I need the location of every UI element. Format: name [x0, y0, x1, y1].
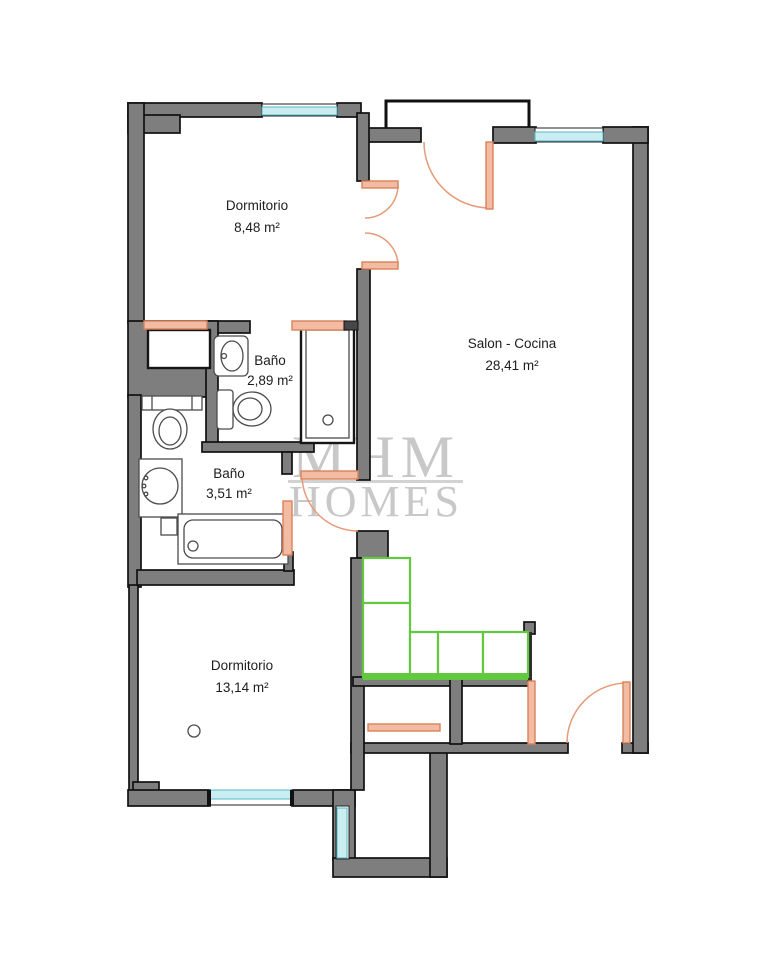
- wall-top-right-2: [603, 127, 648, 143]
- room-name-bathroom-1: Baño: [254, 353, 286, 368]
- toilet1-cistern: [217, 390, 233, 429]
- window-patio-glass: [337, 808, 347, 858]
- toilet2-cistern: [142, 396, 202, 410]
- window-bedroom2-tick-right: [290, 790, 294, 806]
- bathroom2-small-unit: [161, 518, 177, 535]
- bathtub-inner: [184, 520, 282, 558]
- counter-cell-1: [363, 558, 410, 603]
- washbasin-icon: [142, 468, 178, 504]
- bathtub-drain: [188, 541, 198, 551]
- room-area-bathroom-2: 3,51 m²: [206, 486, 252, 501]
- bathroom-2-label: Baño 3,51 m²: [206, 466, 252, 501]
- storage-b-door-leaf: [528, 681, 535, 744]
- bedroom1-door-arc-bottom: [365, 233, 398, 266]
- floor-plan-drawing: MHM HOMES: [0, 0, 766, 960]
- wall-left-upper: [128, 103, 144, 323]
- counter-cell-2: [363, 603, 410, 677]
- room-name-salon-kitchen: Salon - Cocina: [468, 336, 557, 351]
- bathroom1-sliding-door-cap: [344, 321, 358, 330]
- washbasin-tap-dot1: [144, 476, 148, 480]
- entry-door-arc: [424, 142, 490, 208]
- toilet1-bowl-inner: [238, 398, 262, 420]
- terrace-door-leaf: [623, 682, 630, 743]
- floor-plan: MHM HOMES: [0, 0, 766, 960]
- window-bedroom2-tick-left: [207, 790, 211, 806]
- room-name-bathroom-2: Baño: [213, 466, 245, 481]
- bedroom1-door-arc-top: [365, 185, 398, 218]
- room-name-bedroom-1: Dormitorio: [226, 198, 288, 213]
- wardrobe: [148, 330, 210, 368]
- window-bedroom2-glass: [210, 790, 292, 799]
- wardrobe-sliding-door: [144, 321, 207, 329]
- corridor-door-leaf: [301, 471, 358, 479]
- washbasin-tap-dot3: [144, 492, 148, 496]
- kitchen-counter: [363, 558, 528, 680]
- room-area-bathroom-1: 2,89 m²: [247, 373, 293, 388]
- bathroom1-sliding-door: [292, 321, 346, 330]
- washbasin-tap-dot2: [142, 484, 146, 488]
- wall-bathroom1-bottom: [202, 442, 314, 452]
- bathroom-1-label: Baño 2,89 m²: [247, 353, 293, 388]
- bedroom-1-label: Dormitorio 8,48 m²: [226, 198, 288, 235]
- wall-kitchen-pillar: [357, 531, 388, 558]
- wall-top-right-1: [493, 127, 536, 143]
- room-area-bedroom-1: 8,48 m²: [234, 220, 280, 235]
- bedroom1-door-leaf-top: [362, 181, 398, 188]
- bedroom1-door-leaf-bottom: [362, 262, 398, 269]
- window-bedroom1-glass: [262, 107, 337, 115]
- wall-right: [633, 127, 648, 753]
- room-area-bedroom-2: 13,14 m²: [215, 680, 269, 695]
- salon-kitchen-label: Salon - Cocina 28,41 m²: [468, 336, 557, 373]
- wall-bedroom2-north: [137, 570, 294, 585]
- counter-base-bar: [363, 673, 528, 680]
- wall-bedroom2-bottom-left: [128, 790, 210, 806]
- counter-cell-3: [410, 632, 438, 677]
- room-area-salon-kitchen: 28,41 m²: [485, 358, 539, 373]
- shower-drain: [323, 415, 333, 425]
- bedroom-2-label: Dormitorio 13,14 m²: [211, 658, 273, 695]
- wall-stub-corridor: [282, 452, 292, 474]
- wall-bedroom1-east-upper: [357, 113, 369, 181]
- bathroom2-sliding-door: [283, 501, 292, 555]
- wall-hall-west: [357, 269, 370, 480]
- entry-door-leaf: [486, 142, 493, 209]
- counter-cell-4: [438, 632, 483, 677]
- wall-patio-right: [430, 745, 447, 877]
- floor-drain: [188, 725, 200, 737]
- counter-cell-5: [483, 632, 528, 677]
- watermark-line2: HOMES: [289, 477, 463, 526]
- toilet2-bowl-inner: [159, 417, 181, 445]
- room-name-bedroom-2: Dormitorio: [211, 658, 273, 673]
- terrace-door-arc: [567, 683, 627, 743]
- wall-room-divider: [450, 678, 462, 744]
- entry-landing-outline: [386, 101, 529, 128]
- window-salon-glass: [535, 132, 603, 141]
- sink-tap: [222, 354, 227, 359]
- wall-left-lower: [129, 585, 138, 792]
- storage-a-sliding-door: [368, 724, 440, 731]
